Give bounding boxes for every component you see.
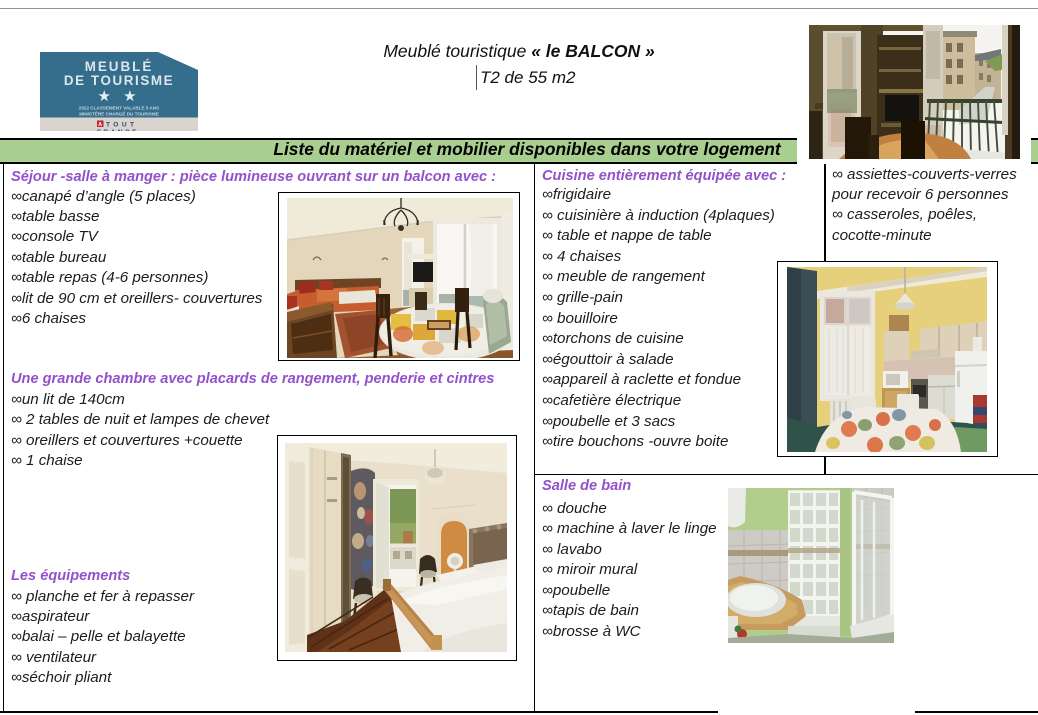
- svg-text:TOUT: TOUT: [106, 122, 137, 129]
- svg-text:DE TOURISME: DE TOURISME: [64, 73, 174, 88]
- svg-text:FRANCE: FRANCE: [97, 129, 139, 131]
- svg-text:MINISTÈRE CHARGÉ DU TOURISME: MINISTÈRE CHARGÉ DU TOURISME: [79, 110, 159, 117]
- svg-text:2022 CLASSEMENT VALABLE 5 ANS: 2022 CLASSEMENT VALABLE 5 ANS: [79, 106, 159, 111]
- svg-text:A: A: [98, 122, 102, 128]
- svg-text:★ ★: ★ ★: [97, 88, 140, 105]
